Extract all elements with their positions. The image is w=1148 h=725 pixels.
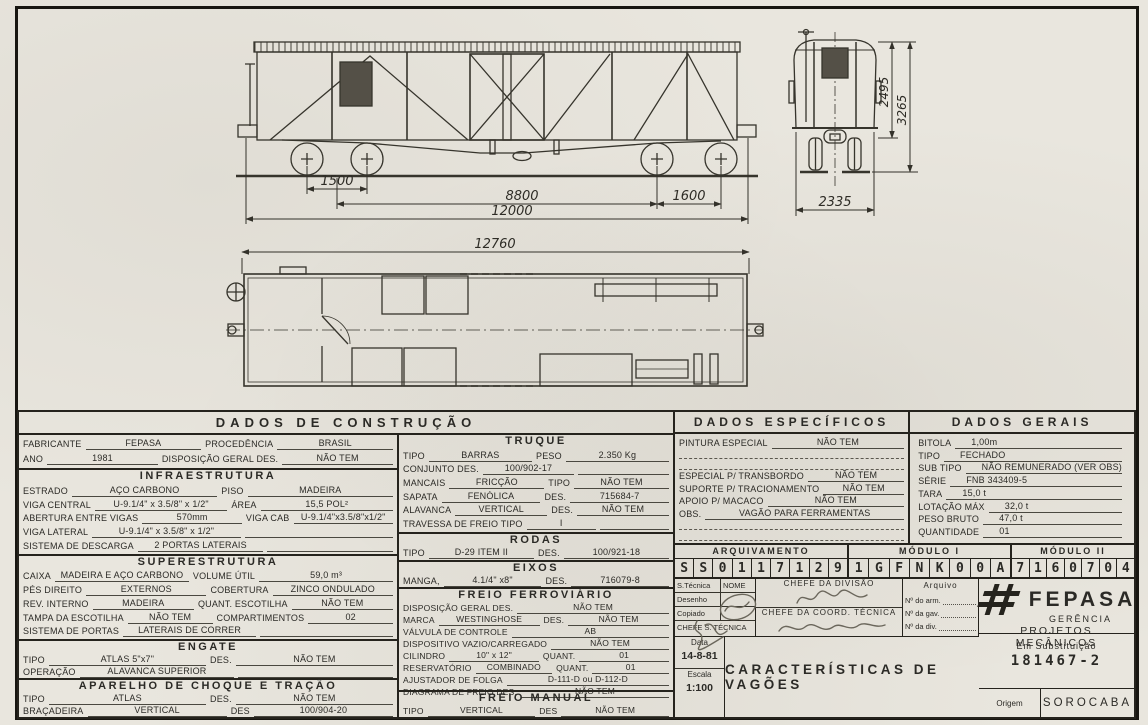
field-row: DISPOSITIVO VAZIO/CARREGADO NÃO TEM: [399, 638, 673, 650]
field-label: BITOLA: [918, 438, 951, 449]
section-eixos: EIXOS MANGA, 4.1/4" x8" DES. 716079-8: [399, 560, 673, 587]
field-row: LOTAÇÃO MÁX 32,0 t: [914, 501, 1126, 513]
field-value: 2 PORTAS LATERAIS: [138, 540, 264, 552]
field-label: DISPOSITIVO VAZIO/CARREGADO: [403, 639, 547, 650]
field-label: SISTEMA DE PORTAS: [23, 626, 119, 637]
field-row: OBS. VAGÃO PARA FERRAMENTAS: [675, 508, 908, 520]
field-label: DES.: [210, 655, 232, 666]
code-char: S: [693, 559, 712, 578]
dim-label-3265: 3265: [895, 95, 909, 126]
field-value: FRICÇÃO: [449, 477, 544, 489]
chefe-divisao-cell: CHEFE DA DIVISÃO: [756, 579, 902, 607]
field-label: BRAÇADEIRA: [23, 706, 84, 717]
field-value: NÃO TEM: [517, 602, 669, 614]
row-copiado: Copiado: [675, 607, 721, 620]
dim-label-2495: 2495: [877, 77, 891, 108]
fepasa-name: FEPASA: [1029, 588, 1137, 612]
approval-table: S.Técnica NOME Desenho Copiado CHEFE S. …: [675, 579, 755, 636]
field-label: PINTURA ESPECIAL: [679, 438, 768, 449]
field-value: NÃO REMUNERADO (VER OBS): [966, 462, 1122, 474]
chefe-coord-label: CHEFE DA COORD. TÉCNICA: [756, 608, 902, 618]
modulo1-code: 1 G F N K 0 0 A: [847, 558, 1010, 578]
field-row: MANGA, 4.1/4" x8" DES. 716079-8: [399, 575, 673, 587]
field-label: VIGA CENTRAL: [23, 500, 91, 511]
wagon-plan-view-drawing: 12760: [222, 236, 767, 408]
field-label: RESERVATÓRIO: [403, 663, 472, 674]
field-value: I: [527, 518, 596, 530]
field-row: ABERTURA ENTRE VIGAS 570mm VIGA CAB U-9.…: [19, 512, 397, 524]
field-label: DES.: [210, 694, 232, 705]
modulo2-code: 7 1 6 0 7 0 4: [1010, 558, 1134, 578]
construction-column-right: TRUQUE TIPO BARRAS PESO 2.350 Kg CONJUNT…: [399, 435, 673, 717]
field-label: DISPOSIÇÃO GERAL DES.: [162, 454, 278, 465]
code-char: 0: [1099, 559, 1117, 578]
field-label: DES: [539, 706, 557, 717]
field-value: NÃO TEM: [236, 693, 393, 705]
leader-line: [939, 630, 976, 631]
field-row: ESTRADO AÇO CARBONO PISO MADEIRA: [19, 485, 397, 497]
code-char: A: [990, 559, 1010, 578]
field-row: REV. INTERNO MADEIRA QUANT. ESCOTILHA NÃ…: [19, 598, 397, 610]
field-value: FEPASA: [86, 438, 202, 450]
field-value: ZINCO ONDULADO: [273, 584, 393, 596]
section-title: FREIO FERROVIÁRIO: [399, 589, 673, 602]
field-value: VAGÃO PARA FERRAMENTAS: [705, 508, 904, 520]
field-row: SISTEMA DE PORTAS LATERAIS DE CORRER: [19, 625, 397, 637]
field-value: U-9.1/4" x 3.5/8" x 1/2": [95, 499, 227, 511]
field-row: CAIXA MADEIRA E AÇO CARBONO VOLUME ÚTIL …: [19, 570, 397, 582]
section-choque-tracao: APARELHO DE CHOQUE E TRAÇÃO TIPO ATLAS D…: [19, 678, 397, 717]
leader-line: [679, 520, 904, 530]
field-value: VERTICAL: [428, 705, 536, 717]
field-value: MADEIRA: [93, 598, 194, 610]
field-value: 100/921-18: [564, 547, 669, 559]
field-label: PROCEDÊNCIA: [205, 439, 273, 450]
fepasa-logo-icon: [977, 583, 1021, 617]
leader-line: [679, 449, 904, 459]
field-value: NÃO TEM: [282, 453, 393, 465]
drawing-title-area: CARACTERÍSTICAS DE VAGÕES: [725, 636, 979, 717]
field-label: PÉS DIREITO: [23, 585, 82, 596]
code-char: 0: [712, 559, 731, 578]
field-label: REV. INTERNO: [23, 599, 89, 610]
date-label: Data: [675, 637, 724, 649]
field-row: PESO BRUTO 47,0 t: [914, 513, 1126, 525]
arquivo-div-label: Nº da div.: [905, 622, 937, 631]
field-row: ANO 1981 DISPOSIÇÃO GERAL DES. NÃO TEM: [19, 453, 397, 465]
field-row: SÉRIE FNB 343409-5: [914, 475, 1126, 487]
code-char: 9: [828, 559, 847, 578]
field-label: SÉRIE: [918, 476, 946, 487]
field-label: QUANT.: [543, 651, 575, 662]
field-row: TIPO FECHADO: [914, 450, 1126, 462]
field-label: COBERTURA: [210, 585, 268, 596]
field-value: COMBINADO: [476, 662, 553, 674]
field-value: NÃO TEM: [772, 437, 904, 449]
field-label: TIPO: [403, 548, 425, 559]
scale-value: 1:100: [675, 681, 724, 695]
substitution-number: 181467-2: [979, 653, 1134, 669]
field-row: TIPO ATLAS 5"x7" DES. NÃO TEM: [19, 654, 397, 666]
field-label: SUB TIPO: [918, 463, 961, 474]
field-value: 15,0 t: [946, 488, 1122, 500]
origem-row: Origem SOROCABA: [979, 689, 1134, 717]
arquivo-arm-label: Nº do arm.: [905, 596, 941, 605]
section-title: INFRAESTRUTURA: [19, 470, 397, 483]
leader-line: [941, 617, 976, 618]
field-row: TRAVESSA DE FREIO TIPO I: [399, 518, 673, 530]
dim-label-12760: 12760: [474, 237, 515, 252]
field-value: NÃO TEM: [128, 612, 213, 624]
leader-line: [943, 604, 976, 605]
field-row: OPERAÇÃO ALAVANCA SUPERIOR: [19, 666, 397, 678]
field-row: ALAVANCA VERTICAL DES. NÃO TEM: [399, 504, 673, 516]
field-value: VERTICAL: [455, 504, 547, 516]
section-truque: TRUQUE TIPO BARRAS PESO 2.350 Kg CONJUNT…: [399, 435, 673, 532]
field-value: LATERAIS DE CORRER: [123, 625, 256, 637]
field-label: ESTRADO: [23, 486, 68, 497]
section-freio-manual: FREIO MANUAL TIPO VERTICAL DES NÃO TEM: [399, 690, 673, 717]
arquivamento-code: S S 0 1 1 7 1 2 9: [675, 558, 847, 578]
code-char: 0: [949, 559, 969, 578]
field-value: 02: [308, 612, 393, 624]
field-value: NÃO TEM: [808, 470, 904, 482]
field-value: NÃO TEM: [292, 598, 393, 610]
field-value: NÃO TEM: [561, 705, 669, 717]
field-label: CONJUNTO DES.: [403, 464, 479, 475]
field-label: ESPECIAL P/ TRANSBORDO: [679, 471, 804, 482]
section-title: ENGATE: [19, 641, 397, 654]
field-label: OPERAÇÃO: [23, 667, 76, 678]
field-value: 59,0 m³: [259, 570, 393, 582]
field-label: TIPO: [23, 655, 45, 666]
field-label: DES: [231, 706, 250, 717]
stecnica-header: S.Técnica: [675, 579, 721, 592]
field-value: NÃO TEM: [236, 654, 393, 666]
field-value: [260, 635, 393, 637]
field-label: VIGA LATERAL: [23, 527, 88, 538]
field-label: DES.: [538, 548, 560, 559]
field-label: MARCA: [403, 615, 435, 626]
section-engate: ENGATE TIPO ATLAS 5"x7" DES. NÃO TEM OPE…: [19, 639, 397, 678]
field-row: AJUSTADOR DE FOLGA D-111-D ou D-112-D: [399, 674, 673, 686]
field-label: CILINDRO: [403, 651, 445, 662]
field-label: QUANT.: [556, 663, 588, 674]
field-value: 1,00m: [955, 437, 1122, 449]
leader-line: [679, 531, 904, 541]
field-value: FNB 343409-5: [950, 475, 1122, 487]
field-label: ANO: [23, 454, 43, 465]
arquivamento-band: ARQUIVAMENTO MÓDULO I MÓDULO II S S 0 1 …: [675, 545, 1134, 579]
field-label: FABRICANTE: [23, 439, 82, 450]
origem-label: Origem: [979, 689, 1041, 717]
field-value: 1981: [47, 453, 158, 465]
field-value: U-9.1/4"x3.5/8"x1/2": [294, 512, 394, 524]
field-label: ÁREA: [231, 500, 256, 511]
field-value: U-9.1/4" x 3.5/8" x 1/2": [92, 526, 240, 538]
section-title: EIXOS: [399, 562, 673, 575]
field-value: [600, 528, 669, 530]
desenho-signature-cell: [721, 593, 755, 606]
field-value: [245, 536, 393, 538]
field-row: VIGA LATERAL U-9.1/4" x 3.5/8" x 1/2": [19, 526, 397, 538]
field-row: APOIO P/ MACACO NÃO TEM: [675, 495, 908, 507]
chiefs-signature-area: CHEFE DA DIVISÃO CHEFE DA COORD. TÉCNICA: [755, 579, 903, 636]
field-value: D-29 ITEM II: [429, 547, 534, 559]
scale-label: Escala: [675, 669, 724, 681]
field-row: TIPO ATLAS DES. NÃO TEM: [19, 693, 397, 705]
copiado-signature-cell: [721, 607, 755, 620]
field-row: SUB TIPO NÃO REMUNERADO (VER OBS): [914, 462, 1126, 474]
field-value: EXTERNOS: [86, 584, 206, 596]
date-scale-column: Data 14-8-81 Escala 1:100: [675, 636, 725, 717]
field-label: SUPORTE P/ TRACIONAMENTO: [679, 484, 819, 495]
field-value: [578, 473, 669, 475]
field-row: VIGA CENTRAL U-9.1/4" x 3.5/8" x 1/2" ÁR…: [19, 499, 397, 511]
field-row: TIPO D-29 ITEM II DES. 100/921-18: [399, 547, 673, 559]
field-value: MADEIRA E AÇO CARBONO: [55, 570, 189, 582]
field-value: AÇO CARBONO: [72, 485, 217, 497]
field-row: VÁLVULA DE CONTROLE AB: [399, 626, 673, 638]
section-infraestrutura: INFRAESTRUTURA ESTRADO AÇO CARBONO PISO …: [19, 468, 397, 554]
field-row: PINTURA ESPECIAL NÃO TEM: [675, 437, 908, 449]
code-char: G: [868, 559, 888, 578]
code-char: 1: [789, 559, 808, 578]
code-char: 7: [770, 559, 789, 578]
field-label: AJUSTADOR DE FOLGA: [403, 675, 503, 686]
field-value: FENÓLICA: [442, 491, 541, 503]
field-label: VOLUME ÚTIL: [193, 571, 255, 582]
construction-data-title: DADOS DE CONSTRUÇÃO: [19, 412, 673, 435]
field-value: BARRAS: [429, 450, 532, 462]
code-char: F: [889, 559, 909, 578]
code-char: K: [929, 559, 949, 578]
modulo2-header: MÓDULO II: [1010, 545, 1134, 558]
field-label: OBS.: [679, 509, 701, 520]
arquivo-box: Arquivo Nº do arm. Nº da gav. Nº da div.: [903, 579, 979, 636]
field-value: NÃO TEM: [568, 614, 669, 626]
section-title: SUPERESTRUTURA: [19, 556, 397, 569]
section-title: TRUQUE: [399, 435, 673, 448]
field-label: DES.: [545, 576, 567, 587]
field-value: FECHADO: [944, 450, 1122, 462]
field-row: PÉS DIREITO EXTERNOS COBERTURA ZINCO OND…: [19, 584, 397, 596]
field-value: 15,5 POL²: [261, 499, 393, 511]
field-label: QUANTIDADE: [918, 527, 979, 538]
field-row: DISPOSIÇÃO GERAL DES. NÃO TEM: [399, 602, 673, 614]
field-value: 4.1/4" x8": [444, 575, 542, 587]
field-value: 32,0 t: [989, 501, 1122, 513]
field-value: 01: [579, 650, 669, 662]
field-row: SISTEMA DE DESCARGA 2 PORTAS LATERAIS: [19, 540, 397, 552]
field-label: TAMPA DA ESCOTILHA: [23, 613, 124, 624]
field-row: TAMPA DA ESCOTILHA NÃO TEM COMPARTIMENTO…: [19, 612, 397, 624]
drawing-title: CARACTERÍSTICAS DE VAGÕES: [725, 662, 979, 692]
field-value: [267, 550, 393, 552]
nome-header: NOME: [721, 579, 755, 592]
field-label: APOIO P/ MACACO: [679, 496, 764, 507]
dim-label-1600: 1600: [672, 189, 705, 204]
specific-data-section: DADOS ESPECÍFICOS PINTURA ESPECIAL NÃO T…: [675, 412, 910, 543]
section-freio-ferroviario: FREIO FERROVIÁRIO DISPOSIÇÃO GERAL DES. …: [399, 587, 673, 690]
field-value: 570mm: [142, 512, 242, 524]
field-value: 10" x 12": [449, 650, 539, 662]
wagon-side-view-drawing: 1500 8800 1600 12000: [222, 26, 767, 236]
field-row: SAPATA FENÓLICA DES. 715684-7: [399, 491, 673, 503]
arquivo-title: Arquivo: [903, 579, 978, 592]
field-label: DES.: [551, 505, 573, 516]
field-value: NÃO TEM: [574, 477, 669, 489]
field-label: SAPATA: [403, 492, 438, 503]
dim-label-1500: 1500: [320, 174, 353, 189]
origem-value: SOROCABA: [1041, 689, 1134, 717]
field-row: MANCAIS FRICÇÃO TIPO NÃO TEM: [399, 477, 673, 489]
section-title: RODAS: [399, 534, 673, 547]
field-label: QUANT. ESCOTILHA: [198, 599, 288, 610]
code-char: 6: [1046, 559, 1064, 578]
field-label: PISO: [221, 486, 243, 497]
field-value: WESTINGHOSE: [439, 614, 540, 626]
field-value: MADEIRA: [248, 485, 393, 497]
field-value: D-111-D ou D-112-D: [507, 674, 669, 686]
field-row: TIPO BARRAS PESO 2.350 Kg: [399, 450, 673, 462]
field-value: ATLAS: [49, 693, 206, 705]
field-label: PESO: [536, 451, 562, 462]
code-char: 7: [1081, 559, 1099, 578]
leader-line: [679, 460, 904, 470]
general-data-section: DADOS GERAIS BITOLA 1,00m TIPO FECHADO S…: [910, 412, 1134, 543]
code-char: 2: [809, 559, 828, 578]
code-char: N: [909, 559, 929, 578]
field-value: 01: [983, 526, 1122, 538]
field-row: FABRICANTE FEPASA PROCEDÊNCIA BRASIL: [19, 438, 397, 450]
field-label: DES.: [544, 492, 566, 503]
code-char: S: [675, 559, 693, 578]
code-char: 4: [1116, 559, 1134, 578]
right-data-block: DADOS ESPECÍFICOS PINTURA ESPECIAL NÃO T…: [675, 412, 1134, 717]
field-label: DISPOSIÇÃO GERAL DES.: [403, 603, 513, 614]
row-chefe-stecnica: CHEFE S. TÉCNICA: [675, 621, 755, 635]
section-superestrutura: SUPERESTRUTURA CAIXA MADEIRA E AÇO CARBO…: [19, 554, 397, 640]
field-row: RESERVATÓRIO COMBINADO QUANT. 01: [399, 662, 673, 674]
field-value: VERTICAL: [88, 705, 227, 717]
code-char: 0: [1064, 559, 1082, 578]
field-value: BRASIL: [277, 438, 393, 450]
code-char: 1: [751, 559, 770, 578]
wagon-end-view-drawing: 2335 2495 3265: [762, 26, 947, 238]
field-row: BRAÇADEIRA VERTICAL DES 100/904-20: [19, 705, 397, 717]
field-row: SUPORTE P/ TRACIONAMENTO NÃO TEM: [675, 483, 908, 495]
field-label: TIPO: [403, 706, 424, 717]
field-label: MANCAIS: [403, 478, 445, 489]
field-value: 715684-7: [570, 491, 669, 503]
field-label: VIGA CAB: [246, 513, 290, 524]
data-tables: DADOS DE CONSTRUÇÃO FABRICANTE FEPASA PR…: [17, 410, 1136, 719]
construction-data-block: DADOS DE CONSTRUÇÃO FABRICANTE FEPASA PR…: [19, 412, 675, 717]
section-rodas: RODAS TIPO D-29 ITEM II DES. 100/921-18: [399, 532, 673, 560]
scanned-drawing-sheet: 1500 8800 1600 12000: [0, 0, 1148, 725]
substitution-label: Em Substituição: [979, 641, 1134, 651]
field-value: 47,0 t: [983, 513, 1122, 525]
field-row: MARCA WESTINGHOSE DES. NÃO TEM: [399, 614, 673, 626]
field-value: NÃO TEM: [768, 495, 905, 507]
field-label: TRAVESSA DE FREIO TIPO: [403, 519, 523, 530]
fepasa-gerencia: GERÊNCIA: [1027, 614, 1134, 624]
field-row: ESPECIAL P/ TRANSBORDO NÃO TEM: [675, 470, 908, 482]
field-label: VÁLVULA DE CONTROLE: [403, 627, 508, 638]
field-label: TIPO: [23, 694, 45, 705]
field-label: DES.: [544, 615, 565, 626]
code-char: 1: [732, 559, 751, 578]
field-row: TIPO VERTICAL DES NÃO TEM: [399, 705, 673, 717]
code-char: 1: [1029, 559, 1047, 578]
field-row: CONJUNTO DES. 100/902-17: [399, 463, 673, 475]
section-title: APARELHO DE CHOQUE E TRAÇÃO: [19, 680, 397, 693]
chefe-coord-cell: CHEFE DA COORD. TÉCNICA: [756, 607, 902, 635]
dim-label-12000: 12000: [491, 204, 532, 219]
field-value: 716079-8: [571, 575, 669, 587]
field-label: LOTAÇÃO MÁX: [918, 502, 985, 513]
section-general: FABRICANTE FEPASA PROCEDÊNCIA BRASIL ANO…: [19, 435, 397, 468]
field-value: 100/904-20: [254, 705, 393, 717]
field-row: BITOLA 1,00m: [914, 437, 1126, 449]
field-row: TARA 15,0 t: [914, 488, 1126, 500]
field-value: NÃO TEM: [823, 483, 904, 495]
field-value: 2.350 Kg: [566, 450, 669, 462]
field-label: TARA: [918, 489, 942, 500]
field-row: CILINDRO 10" x 12" QUANT. 01: [399, 650, 673, 662]
code-char: 7: [1012, 559, 1029, 578]
field-row: QUANTIDADE 01: [914, 526, 1126, 538]
substitution-box: Em Substituição 181467-2: [979, 634, 1134, 689]
field-label: CAIXA: [23, 571, 51, 582]
field-label: SISTEMA DE DESCARGA: [23, 541, 134, 552]
field-label: COMPARTIMENTOS: [217, 613, 305, 624]
field-label: TIPO: [403, 451, 425, 462]
specific-data-title: DADOS ESPECÍFICOS: [675, 412, 908, 434]
field-label: ALAVANCA: [403, 505, 451, 516]
arquivo-gav-label: Nº da gav.: [905, 609, 939, 618]
fepasa-logo-block: FEPASA GERÊNCIA PROJETOS MECÂNICOS: [979, 579, 1134, 634]
date-value: 14-8-81: [675, 649, 724, 663]
field-label: TIPO: [918, 451, 940, 462]
dim-label-2335: 2335: [818, 195, 851, 210]
field-value: 01: [592, 662, 669, 674]
code-char: 0: [970, 559, 990, 578]
field-value: 100/902-17: [483, 463, 574, 475]
field-value: AB: [512, 626, 669, 638]
construction-column-left: FABRICANTE FEPASA PROCEDÊNCIA BRASIL ANO…: [19, 435, 399, 717]
field-value: NÃO TEM: [577, 504, 669, 516]
arquivamento-header: ARQUIVAMENTO: [675, 545, 847, 558]
row-desenho: Desenho: [675, 593, 721, 606]
field-value: NÃO TEM: [551, 638, 669, 650]
dim-label-8800: 8800: [505, 189, 538, 204]
general-data-title: DADOS GERAIS: [910, 412, 1134, 434]
title-block: S.Técnica NOME Desenho Copiado CHEFE S. …: [675, 579, 1134, 717]
chefe-divisao-label: CHEFE DA DIVISÃO: [756, 579, 902, 589]
section-title: FREIO MANUAL: [399, 692, 673, 705]
field-label: ABERTURA ENTRE VIGAS: [23, 513, 138, 524]
field-label: PESO BRUTO: [918, 514, 979, 525]
modulo1-header: MÓDULO I: [847, 545, 1010, 558]
field-value: ATLAS 5"x7": [49, 654, 206, 666]
field-label: MANGA,: [403, 576, 440, 587]
field-label: TIPO: [548, 478, 570, 489]
code-char: 1: [849, 559, 868, 578]
field-value: ALAVANCA SUPERIOR: [80, 666, 235, 678]
